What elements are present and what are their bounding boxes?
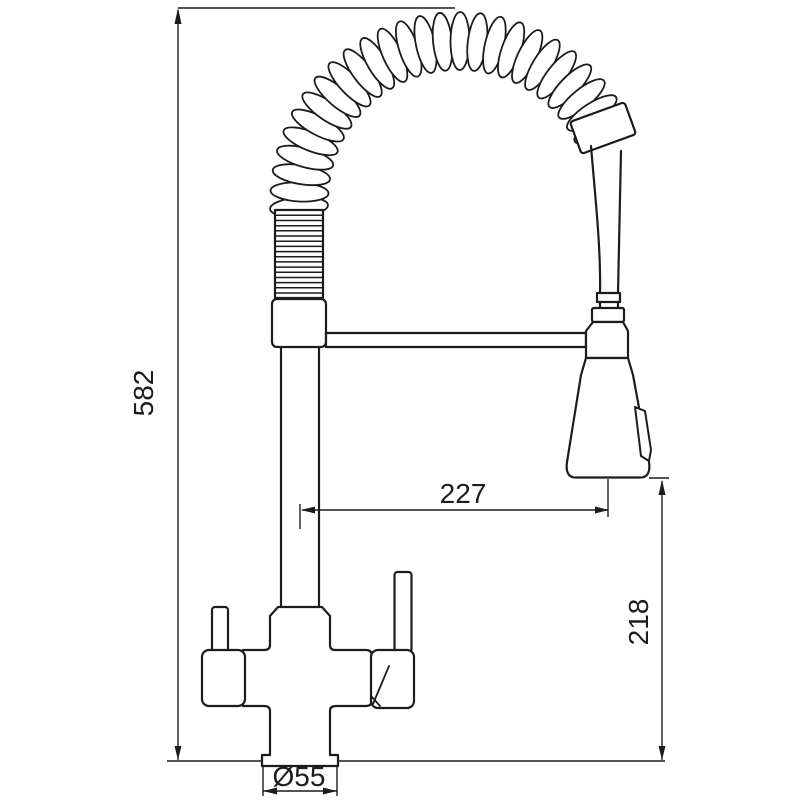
junction-block — [272, 299, 326, 347]
support-bar — [326, 333, 586, 347]
right-valve-block — [371, 650, 414, 708]
right-handle-stem — [395, 572, 412, 652]
dim-label-227: 227 — [440, 478, 487, 509]
sprayer-holder — [586, 322, 628, 358]
left-valve-block — [202, 650, 245, 706]
dim-spout-reach: 227 — [300, 478, 609, 529]
spring-tight-section — [275, 210, 323, 298]
dim-label-218: 218 — [623, 599, 654, 646]
spring-coil — [269, 12, 630, 219]
faucet-body-outline — [243, 607, 372, 766]
riser-pipe — [281, 340, 319, 610]
left-handle-stem — [212, 607, 228, 652]
sprayer-hose — [591, 146, 624, 322]
faucet-dimension-diagram: 582 227 218 Ø55 — [0, 0, 800, 800]
dim-label-582: 582 — [128, 370, 159, 417]
dim-outlet-height: 218 — [623, 478, 669, 760]
dim-label-base-diameter: Ø55 — [273, 761, 326, 792]
technical-drawing-canvas: 582 227 218 Ø55 — [0, 0, 800, 800]
